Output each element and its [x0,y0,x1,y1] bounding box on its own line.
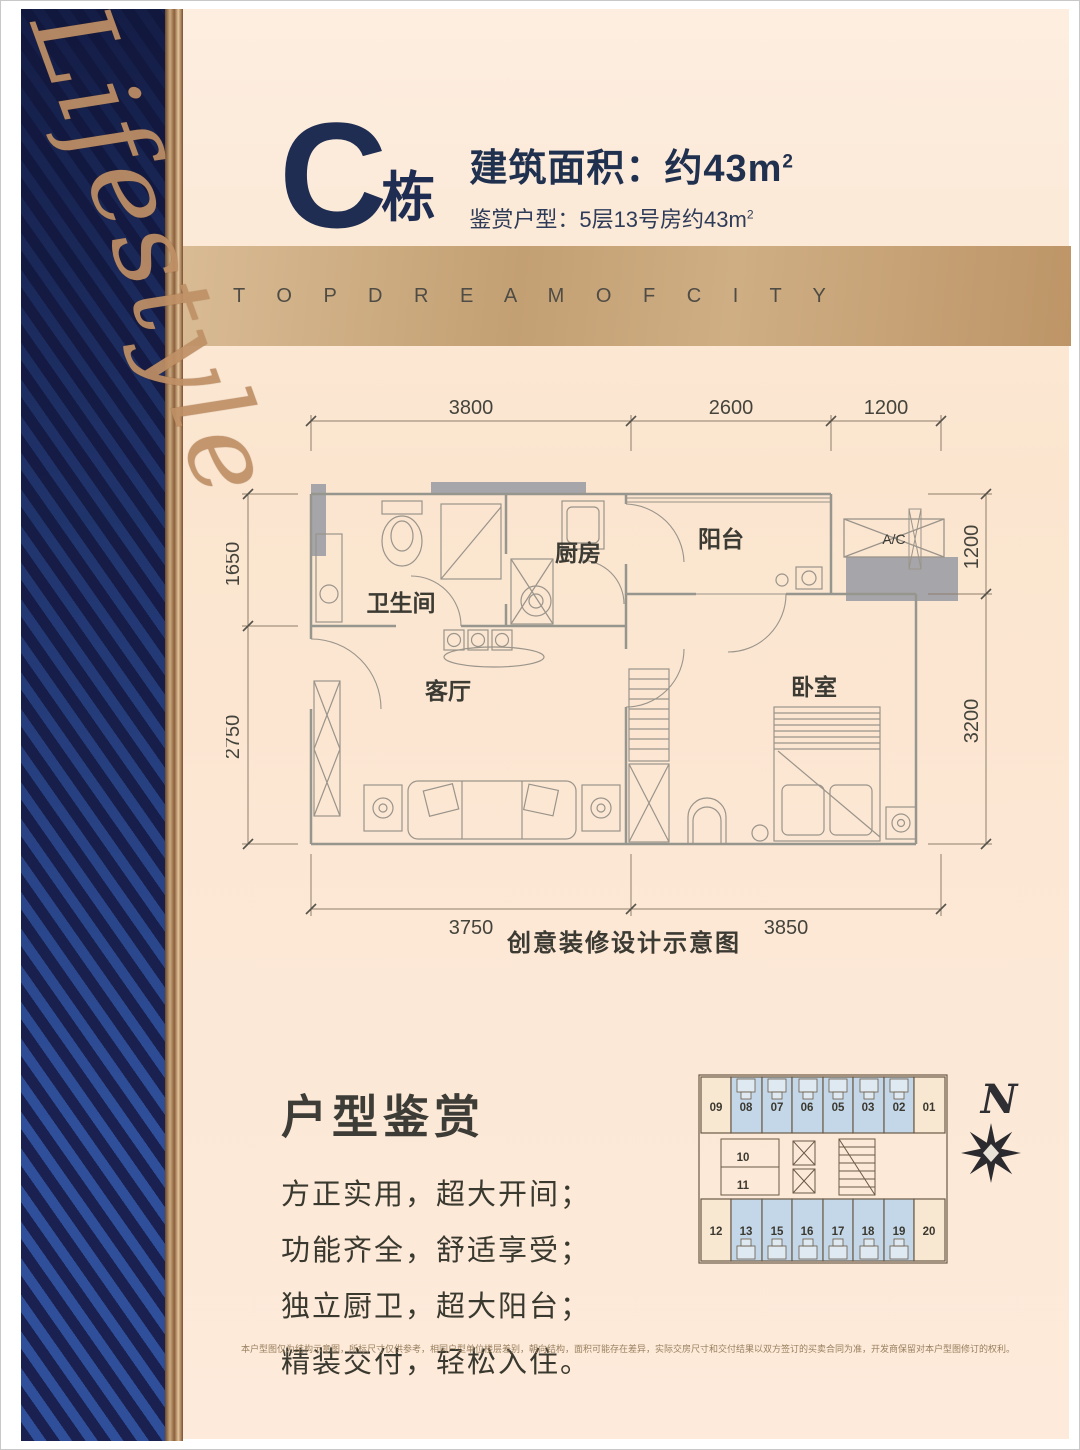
appreciation-line: 功能齐全，舒适享受； [281,1223,591,1279]
appreciation-line: 方正实用，超大开间； [281,1167,591,1223]
dim-left-1: 1650 [226,542,244,587]
slogan-banner: T O P D R E A M O F C I T Y [181,246,1071,346]
unit-subtitle-text: 鉴赏户型：5层13号房约43m [469,207,747,232]
furniture [314,501,916,844]
disclaimer: 本户型图仅为结构示意图，所标尺寸仅供参考，相同户型单位楼层差别，朝向结构，面积可… [191,1342,1065,1355]
dim-right-1: 1200 [961,525,983,570]
unit-number: 09 [710,1102,723,1114]
area-title-sup: 2 [782,151,794,172]
slogan-text: T O P D R E A M O F C I T Y [181,285,839,308]
unit-subtitle: 鉴赏户型：5层13号房约43m2 [469,202,794,234]
room-label-balcony: 阳台 [698,526,744,552]
floorplan-caption: 创意装修设计示意图 [506,929,741,957]
flyer-page: Lifestyle C 栋 建筑面积：约43m2 鉴赏户型：5层13号房约43m… [0,0,1080,1450]
building-letter: C [279,117,385,234]
dimension-ticks [243,416,991,914]
wall-fills [311,482,958,601]
unit-number: 13 [740,1226,753,1238]
dim-bottom-1: 3750 [449,917,494,939]
dim-right-2: 3200 [961,699,983,744]
room-label-bedroom: 卧室 [791,674,837,700]
compass-n-label: N [979,1076,1019,1123]
keyplan-svg: 09 08 07 06 05 03 02 01 10 11 12 13 15 1… [693,1069,953,1269]
unit-number: 11 [737,1180,750,1192]
appreciation-heading: 户型鉴赏 [281,1081,591,1147]
unit-number: 01 [923,1102,936,1114]
dim-top-2: 2600 [709,397,754,419]
area-title-text: 建筑面积：约43m [469,148,782,190]
room-label-bathroom: 卫生间 [367,590,436,616]
unit-number: 17 [832,1226,845,1238]
floorplan: 3800 2600 1200 1650 2750 1200 3200 3750 … [226,389,1016,969]
dim-top-1: 3800 [449,397,494,419]
unit-number: 03 [862,1102,875,1114]
area-title: 建筑面积：约43m2 [469,137,794,192]
side-decor-band: Lifestyle [21,9,181,1441]
unit-number: 20 [923,1226,936,1238]
unit-number: 19 [893,1226,906,1238]
title-block: C 栋 建筑面积：约43m2 鉴赏户型：5层13号房约43m2 [279,117,794,234]
room-label-kitchen: 厨房 [555,540,601,566]
compass: N [951,1073,1051,1193]
room-label-ac: A/C [882,531,905,547]
unit-number: 10 [737,1152,750,1164]
room-labels: 卫生间 厨房 阳台 客厅 卧室 A/C [367,526,906,704]
floorplan-svg: 3800 2600 1200 1650 2750 1200 3200 3750 … [226,389,1016,964]
dim-left-2: 2750 [226,715,244,760]
unit-number: 02 [893,1102,906,1114]
unit-number: 05 [832,1102,845,1114]
unit-number: 08 [740,1102,753,1114]
appreciation-line: 独立厨卫，超大阳台； [281,1279,591,1335]
room-label-living: 客厅 [425,678,471,704]
compass-svg: N [951,1073,1051,1188]
dim-top-3: 1200 [864,397,909,419]
unit-number: 12 [710,1226,723,1238]
dimension-labels: 3800 2600 1200 1650 2750 1200 3200 3750 … [226,397,983,939]
keyplan: 09 08 07 06 05 03 02 01 10 11 12 13 15 1… [693,1069,953,1274]
disclaimer-text: 本户型图仅为结构示意图，所标尺寸仅供参考，相同户型单位楼层差别，朝向结构，面积可… [241,1342,1015,1355]
dim-bottom-2: 3850 [764,917,809,939]
unit-number: 18 [862,1226,875,1238]
building-suffix: 栋 [381,153,435,232]
unit-number: 06 [801,1102,814,1114]
unit-number: 16 [801,1226,814,1238]
unit-number: 15 [771,1226,784,1238]
unit-number: 07 [771,1102,784,1114]
unit-subtitle-sup: 2 [747,208,754,222]
